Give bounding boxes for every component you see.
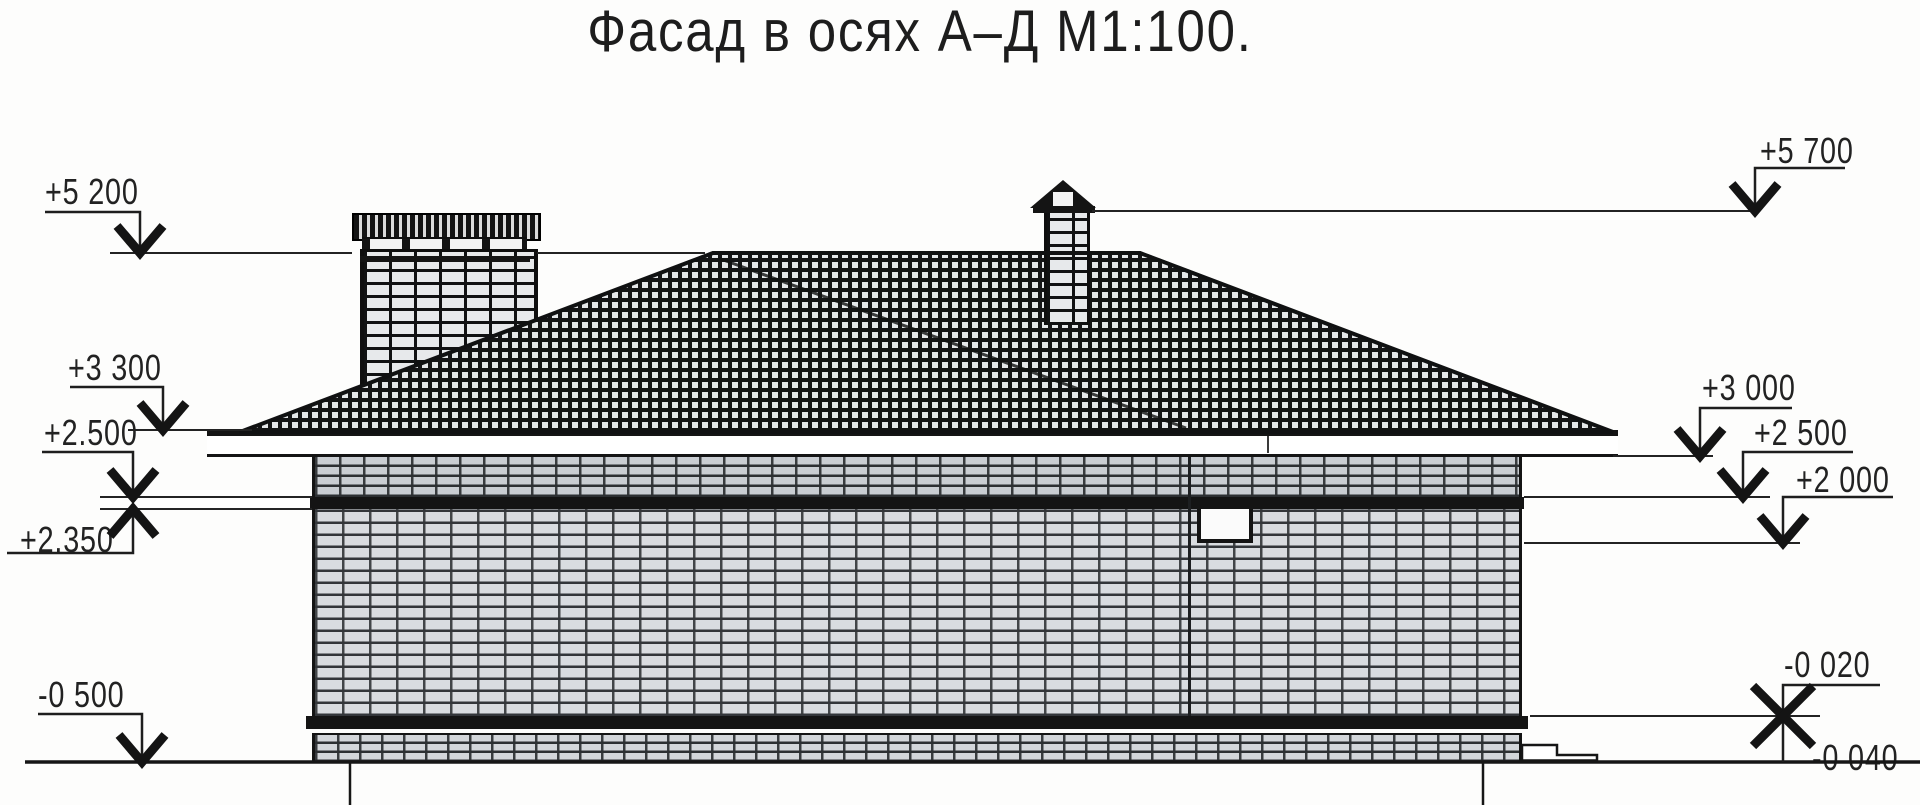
elevation-label-minus-0-040: -0 040 bbox=[1812, 740, 1898, 776]
wall-plinth bbox=[312, 735, 1522, 762]
center-chimney-body bbox=[1044, 213, 1090, 325]
wall-bottom-band bbox=[306, 716, 1528, 729]
ground-line bbox=[25, 762, 1920, 805]
wall-frieze-band bbox=[312, 457, 1522, 497]
elevation-label-plus-3-000: +3 000 bbox=[1702, 370, 1796, 406]
steps bbox=[1522, 745, 1597, 761]
facade-drawing-canvas: Фасад в осях А–Д М1:100. bbox=[0, 0, 1920, 805]
window bbox=[1197, 505, 1253, 543]
x-mark-stroke-2 bbox=[1753, 686, 1813, 746]
center-chimney-cap-base bbox=[1033, 206, 1095, 213]
elevation-label-plus-2-350: +2.350 bbox=[20, 522, 114, 558]
left-chimney-top-course bbox=[360, 256, 530, 262]
elevation-label-plus-5-700: +5 700 bbox=[1760, 133, 1854, 169]
elevation-label-plus-2-500-right: +2 500 bbox=[1754, 415, 1848, 451]
drawing-title: Фасад в осях А–Д М1:100. bbox=[550, 2, 1289, 63]
wall-joint-line bbox=[1188, 457, 1191, 716]
wall-main-field bbox=[312, 509, 1522, 716]
eaves-fascia bbox=[207, 430, 1618, 457]
fascia-seam bbox=[1267, 436, 1269, 453]
wall-belt-course bbox=[310, 497, 1524, 509]
elevation-label-minus-0-500: -0 500 bbox=[38, 677, 124, 713]
elevation-label-minus-0-020: -0 020 bbox=[1784, 647, 1870, 683]
elevation-label-plus-2-000: +2 000 bbox=[1796, 462, 1890, 498]
elevation-label-plus-2-500-left: +2.500 bbox=[44, 415, 138, 451]
elevation-label-plus-5-200: +5 200 bbox=[45, 174, 139, 210]
x-mark-stroke-1 bbox=[1753, 686, 1813, 746]
elevation-label-plus-3-300: +3 300 bbox=[68, 350, 162, 386]
center-chimney-vent bbox=[1053, 192, 1073, 206]
